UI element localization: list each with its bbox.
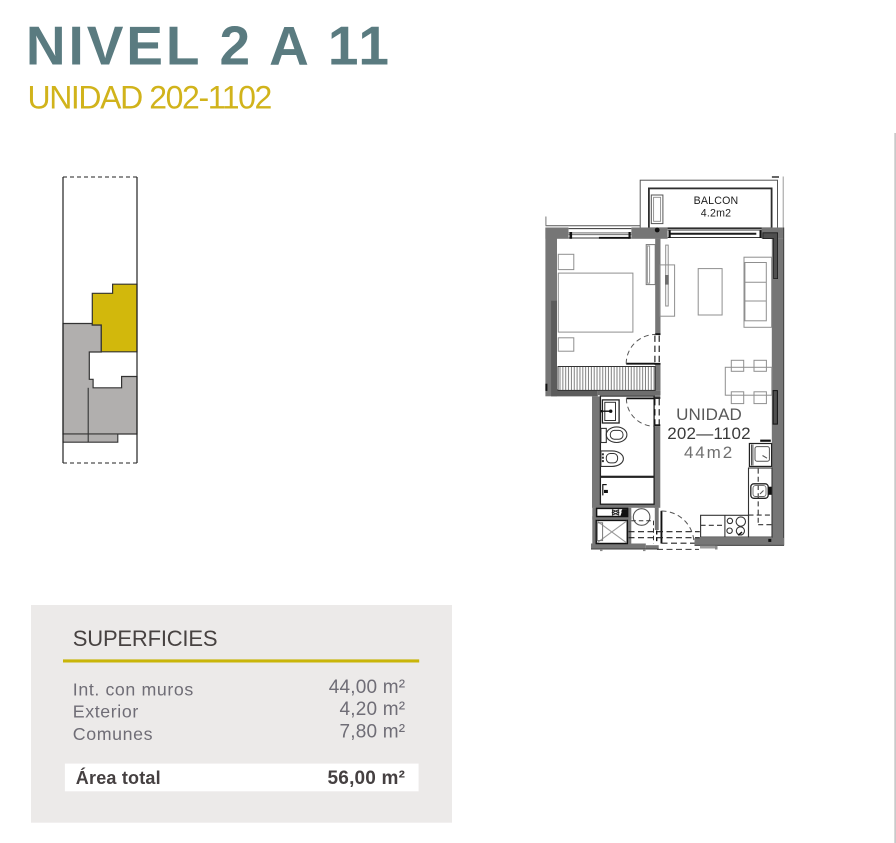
svg-text:202—1102: 202—1102 — [667, 424, 751, 443]
svg-text:SUPERFICIES: SUPERFICIES — [73, 626, 218, 651]
svg-text:Área total: Área total — [76, 767, 161, 788]
svg-text:4,20 m²: 4,20 m² — [339, 699, 405, 720]
svg-text:Comunes: Comunes — [73, 724, 153, 744]
svg-text:56,00 m²: 56,00 m² — [328, 768, 406, 789]
svg-text:Int. con muros: Int. con muros — [73, 679, 194, 699]
svg-text:44m2: 44m2 — [684, 443, 734, 462]
svg-text:BALCON: BALCON — [694, 195, 739, 207]
svg-text:Exterior: Exterior — [73, 702, 139, 722]
svg-text:NIVEL 2 A 11: NIVEL 2 A 11 — [26, 14, 392, 76]
svg-text:4.2m2: 4.2m2 — [701, 207, 731, 219]
svg-text:UNIDAD 202-1102: UNIDAD 202-1102 — [28, 80, 272, 116]
svg-text:UNIDAD: UNIDAD — [676, 405, 742, 424]
svg-text:7,80 m²: 7,80 m² — [339, 721, 405, 742]
svg-text:44,00 m²: 44,00 m² — [329, 677, 406, 698]
